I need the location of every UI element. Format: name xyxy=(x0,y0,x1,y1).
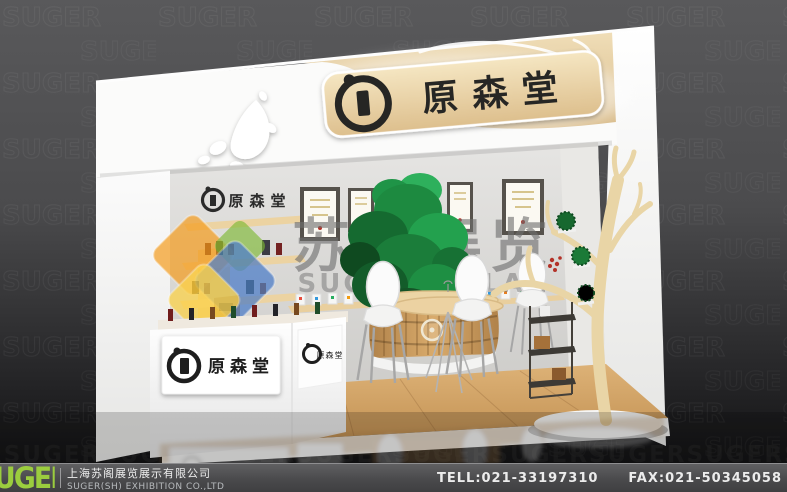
counter-brand-text: 原森堂 xyxy=(208,356,274,377)
company-name-en: SUGER(SH) EXHIBITION CO.,LTD xyxy=(67,482,224,492)
company-info: 上海苏阁展览展示有限公司 SUGER(SH) EXHIBITION CO.,LT… xyxy=(67,464,224,492)
suger-logo: UGER xyxy=(0,464,55,492)
footer-divider xyxy=(60,468,61,488)
tel-label: TELL:021-33197310 xyxy=(437,471,598,486)
footer-bar: UGER 上海苏阁展览展示有限公司 SUGER(SH) EXHIBITION C… xyxy=(0,463,787,492)
wreath-icon xyxy=(578,285,594,301)
exhibition-booth-render: SUGER SUGER RSUGERSUGERSUGERSUGERSUGERSU… xyxy=(0,0,787,492)
wreath-icon xyxy=(572,247,590,265)
booth: 原森堂 原森堂 xyxy=(96,27,670,465)
company-name-cn: 上海苏阁展览展示有限公司 xyxy=(67,467,224,480)
counter-logo-panel-side: 原森堂 xyxy=(298,325,344,389)
contact-info: TELL:021-33197310 FAX:021-50345058 xyxy=(437,471,787,486)
fax-label: FAX:021-50345058 xyxy=(628,471,782,486)
counter-brand-text-small: 原森堂 xyxy=(317,350,344,360)
booth-scene: SUGER SUGER RSUGERSUGERSUGERSUGERSUGERSU… xyxy=(0,0,787,492)
wall-brand-text: 原森堂 xyxy=(228,192,291,210)
wreath-icon xyxy=(557,212,575,230)
counter-logo-panel-front: 原森堂 xyxy=(162,336,280,394)
